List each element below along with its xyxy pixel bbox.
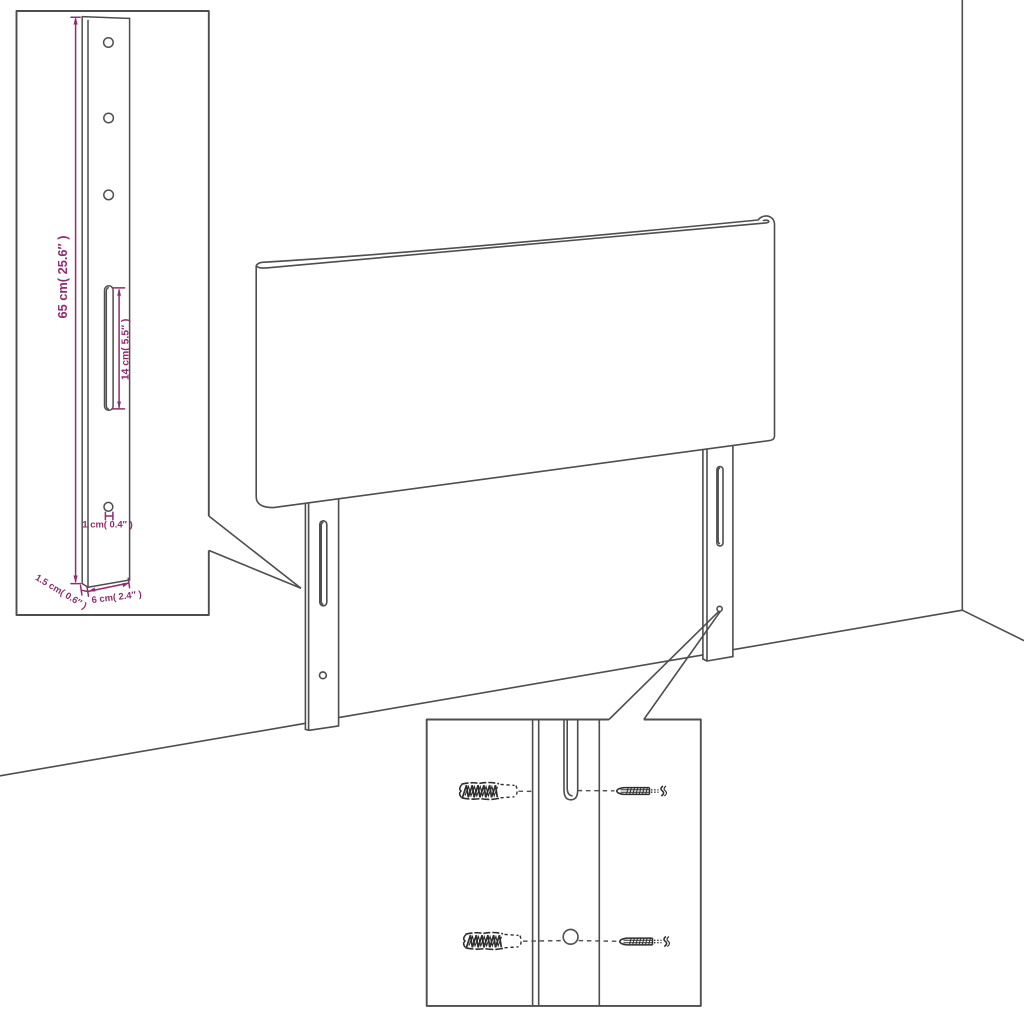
svg-text:65 cm( 25.6″ ): 65 cm( 25.6″ ) bbox=[55, 236, 70, 319]
svg-text:1 cm( 0.4″ ): 1 cm( 0.4″ ) bbox=[82, 519, 132, 530]
svg-text:6 cm( 2.4″ ): 6 cm( 2.4″ ) bbox=[91, 588, 142, 605]
svg-text:14 cm( 5.5″ ): 14 cm( 5.5″ ) bbox=[120, 319, 131, 381]
